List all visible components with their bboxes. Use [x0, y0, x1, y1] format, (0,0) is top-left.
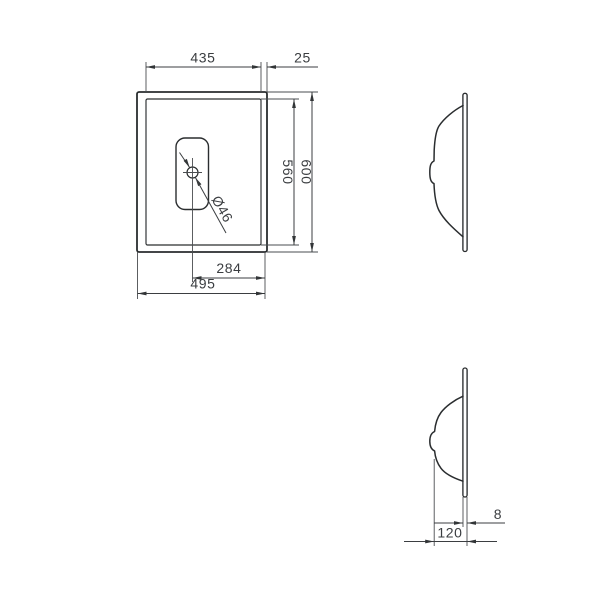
dim-label-120: 120: [437, 525, 462, 541]
arrowhead: [138, 292, 147, 296]
arrowhead: [256, 276, 265, 280]
arrowhead: [146, 65, 155, 69]
profile-bowl-curve-bottom: [430, 396, 463, 481]
plan-view: [137, 92, 267, 282]
arrowhead: [292, 236, 296, 245]
dim-label-435: 435: [190, 50, 215, 66]
arrowhead: [310, 243, 314, 252]
washbasin-technical-drawing: 435 25 560 600 Ø46 284 495 8 120: [0, 0, 600, 600]
arrowhead: [310, 92, 314, 101]
dim-label-560: 560: [280, 159, 296, 184]
arrowhead: [252, 65, 261, 69]
plan-outer-rim: [137, 92, 267, 252]
side-profile-top: [430, 93, 467, 251]
arrowhead: [467, 521, 476, 525]
dim-label-8: 8: [494, 506, 502, 522]
drawing-page: 435 25 560 600 Ø46 284 495 8 120: [0, 0, 600, 600]
dim-label-495: 495: [190, 276, 215, 292]
side-profile-bottom: [430, 368, 467, 497]
profile-flange-top: [463, 93, 467, 251]
dim-label-25: 25: [294, 50, 311, 66]
profile-flange-bottom: [463, 368, 467, 497]
profile-bowl-curve-top: [430, 106, 463, 237]
arrowhead: [425, 540, 434, 544]
dim-label-600: 600: [299, 159, 315, 184]
profile-dimensions: 8 120: [404, 459, 505, 546]
arrowhead: [267, 65, 276, 69]
arrowhead: [256, 292, 265, 296]
arrowhead: [467, 540, 476, 544]
dim-label-284: 284: [216, 260, 241, 276]
plan-inner-rim: [146, 99, 261, 245]
plan-dimensions: 435 25 560 600 Ø46 284 495: [138, 50, 319, 300]
arrowhead: [292, 99, 296, 108]
